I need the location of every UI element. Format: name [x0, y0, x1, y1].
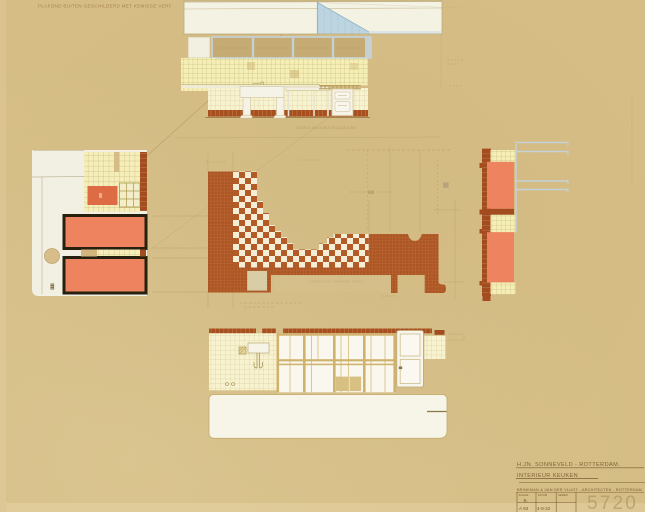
svg-text:DATUM: DATUM [538, 493, 547, 497]
svg-text:5720: 5720 [587, 493, 638, 512]
svg-text:PLAFOND BUITEN GESCHILDERD MET: PLAFOND BUITEN GESCHILDERD MET KEMISGE V… [38, 4, 172, 9]
svg-text:BRINKMAN & VAN DER VLUGT - ARC: BRINKMAN & VAN DER VLUGT - ARCHITECTEN -… [517, 488, 642, 492]
svg-text:INTERIEUR KEUKEN: INTERIEUR KEUKEN [517, 473, 578, 479]
svg-text:B.: B. [524, 498, 528, 503]
svg-text:A 93: A 93 [519, 506, 529, 511]
svg-text:VLOER ROOD GEBAKKEN TEGELS: VLOER ROOD GEBAKKEN TEGELS [310, 280, 364, 284]
svg-text:SCHAAL: SCHAAL [519, 493, 530, 497]
svg-text:GEZIEN: GEZIEN [558, 493, 568, 497]
svg-text:TEGELS 15x15 WIT GEGLAZUURD: TEGELS 15x15 WIT GEGLAZUURD [296, 126, 356, 130]
svg-text:H.JN. SONNEVELD - ROTTERDAM.: H.JN. SONNEVELD - ROTTERDAM. [517, 462, 620, 468]
svg-text:4-9-32: 4-9-32 [537, 506, 551, 511]
